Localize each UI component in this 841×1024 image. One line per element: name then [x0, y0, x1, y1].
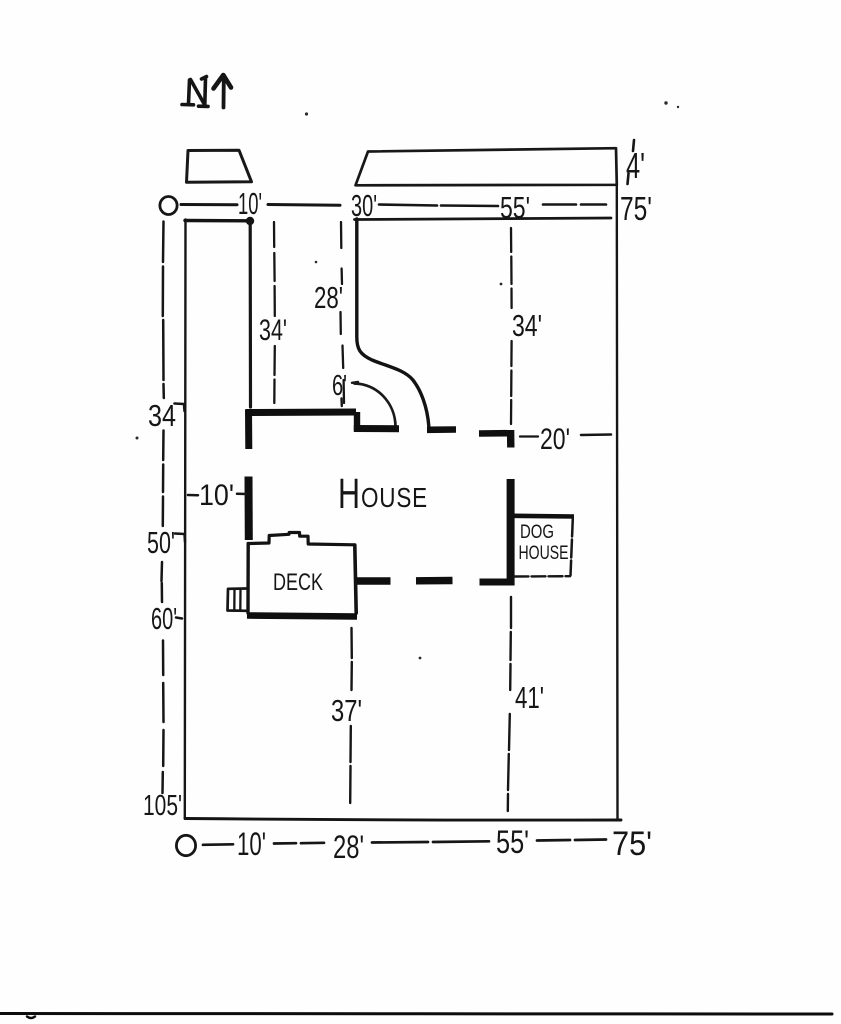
svg-text:28': 28' [333, 829, 364, 865]
svg-text:6': 6' [332, 370, 347, 402]
svg-text:75': 75' [612, 825, 652, 863]
svg-text:37': 37' [331, 693, 362, 728]
svg-text:HOUSE: HOUSE [519, 543, 569, 564]
svg-text:60': 60' [151, 601, 177, 636]
svg-text:10': 10' [199, 479, 234, 512]
svg-text:50': 50' [147, 525, 175, 560]
svg-text:DOG: DOG [520, 522, 554, 543]
svg-text:105': 105' [143, 790, 182, 822]
svg-text:34': 34' [259, 314, 287, 347]
svg-text:OUSE: OUSE [361, 482, 428, 513]
svg-text:4': 4' [626, 145, 645, 186]
svg-text:34': 34' [512, 308, 542, 343]
svg-text:10': 10' [238, 186, 262, 221]
svg-text:28': 28' [314, 280, 343, 315]
svg-text:41': 41' [515, 680, 544, 715]
svg-text:55': 55' [496, 824, 529, 860]
svg-text:10': 10' [237, 826, 266, 862]
svg-text:30': 30' [351, 188, 377, 223]
svg-text:75': 75' [620, 190, 652, 227]
svg-text:34: 34 [148, 398, 176, 433]
svg-text:H: H [338, 470, 360, 518]
svg-text:20': 20' [540, 423, 570, 456]
svg-text:DECK: DECK [273, 569, 323, 596]
